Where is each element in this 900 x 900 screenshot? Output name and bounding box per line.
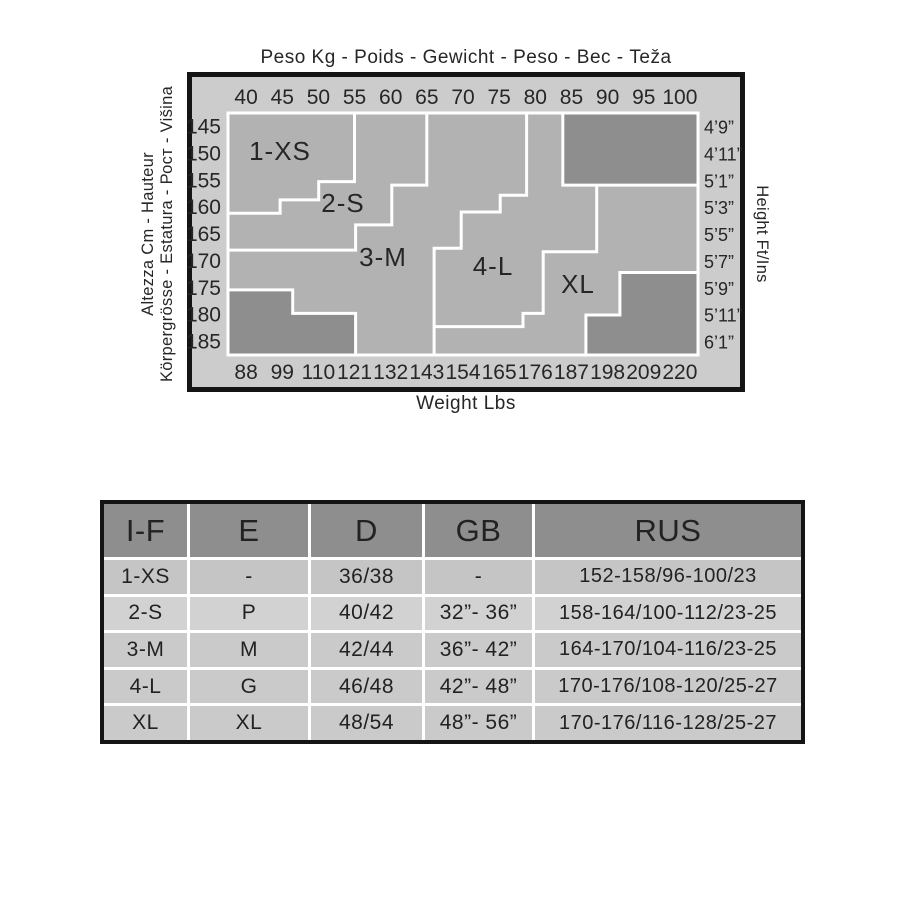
table-header-row: I-F E D GB RUS — [104, 504, 801, 557]
lbs-tick-label: 154 — [445, 361, 480, 384]
size-conversion-table: I-F E D GB RUS 1-XS-36/38-152-158/96-100… — [100, 500, 805, 744]
ftins-tick-label: 4’9” — [704, 118, 734, 138]
table-cell: XL — [104, 706, 190, 740]
ftins-tick-label: 4’11” — [704, 144, 743, 164]
table-cell: 158-164/100-112/23-25 — [535, 597, 801, 631]
table-cell: 42”- 48” — [425, 670, 535, 704]
kg-tick-label: 50 — [307, 86, 330, 109]
kg-tick-label: 85 — [560, 86, 583, 109]
table-cell: 170-176/116-128/25-27 — [535, 706, 801, 740]
table-cell: 4-L — [104, 670, 190, 704]
kg-tick-label: 75 — [487, 86, 510, 109]
table-cell: XL — [190, 706, 311, 740]
table-row: 1-XS-36/38-152-158/96-100/23 — [104, 557, 801, 594]
ftins-tick-label: 5’11” — [704, 306, 743, 326]
lbs-tick-label: 187 — [554, 361, 589, 384]
table-row: XLXL48/5448”- 56”170-176/116-128/25-27 — [104, 703, 801, 740]
kg-tick-label: 80 — [524, 86, 547, 109]
lbs-tick-label: 165 — [482, 361, 517, 384]
table-cell: 46/48 — [311, 670, 425, 704]
ftins-tick-label: 5’1” — [704, 171, 734, 191]
table-cell: 3-M — [104, 633, 190, 667]
table-cell: 2-S — [104, 597, 190, 631]
table-cell: 36/38 — [311, 560, 425, 594]
ftins-tick-label: 5’3” — [704, 198, 734, 218]
lbs-tick-label: 143 — [409, 361, 444, 384]
cm-tick-label: 155 — [186, 169, 221, 192]
table-row: 2-SP40/4232”- 36”158-164/100-112/23-25 — [104, 594, 801, 631]
ftins-tick-label: 5’5” — [704, 225, 734, 245]
table-cell: 36”- 42” — [425, 633, 535, 667]
kg-tick-label: 65 — [415, 86, 438, 109]
right-axis-title: Height Ft/Ins — [753, 185, 771, 282]
table-cell: - — [190, 560, 311, 594]
size-zone-label: 2-S — [321, 188, 364, 218]
table-header-cell-rus: RUS — [535, 504, 801, 557]
table-row: 4-LG46/4842”- 48”170-176/108-120/25-27 — [104, 667, 801, 704]
size-chart-svg: Peso Kg - Poids - Gewicht - Peso - Вес -… — [0, 0, 900, 460]
lbs-tick-label: 132 — [373, 361, 408, 384]
size-zone-label: XL — [561, 269, 595, 299]
table-cell: 152-158/96-100/23 — [535, 560, 801, 594]
lbs-tick-label: 99 — [271, 361, 294, 384]
ftins-tick-label: 5’9” — [704, 279, 734, 299]
lbs-tick-label: 220 — [662, 361, 697, 384]
lbs-tick-label: 121 — [337, 361, 372, 384]
ftins-tick-label: 6’1” — [704, 333, 734, 353]
kg-tick-label: 90 — [596, 86, 619, 109]
table-cell: 164-170/104-116/23-25 — [535, 633, 801, 667]
table-row: 3-MM42/4436”- 42”164-170/104-116/23-25 — [104, 630, 801, 667]
lbs-axis: 8899110121132143154165176187198209220 — [234, 361, 697, 384]
cm-tick-label: 170 — [186, 250, 221, 273]
size-zone-label: 1-XS — [249, 136, 311, 166]
lbs-tick-label: 110 — [302, 361, 335, 384]
table-cell: 48/54 — [311, 706, 425, 740]
size-chart-figure: Peso Kg - Poids - Gewicht - Peso - Вес -… — [0, 0, 900, 460]
cm-axis: 145150155160165170175180185 — [186, 116, 221, 354]
table-header-cell-gb: GB — [425, 504, 535, 557]
size-zone-label: 3-M — [359, 242, 407, 272]
table-cell: 32”- 36” — [425, 597, 535, 631]
table-cell: M — [190, 633, 311, 667]
weight-lbs-axis-title: Weight Lbs — [416, 393, 516, 414]
chart-title: Peso Kg - Poids - Gewicht - Peso - Вес -… — [260, 47, 671, 68]
left-axis-title-line1: Altezza Cm - Hauteur — [139, 152, 157, 316]
cm-tick-label: 145 — [186, 116, 221, 139]
dark-zone-top-right — [563, 113, 698, 185]
kg-tick-label: 100 — [662, 86, 697, 109]
cm-tick-label: 165 — [186, 223, 221, 246]
kg-tick-label: 95 — [632, 86, 655, 109]
lbs-tick-label: 198 — [590, 361, 625, 384]
table-cell: - — [425, 560, 535, 594]
lbs-tick-label: 209 — [626, 361, 661, 384]
table-cell: 40/42 — [311, 597, 425, 631]
kg-tick-label: 60 — [379, 86, 402, 109]
kg-tick-label: 70 — [451, 86, 474, 109]
table-cell: 1-XS — [104, 560, 190, 594]
table-header-cell-e: E — [190, 504, 311, 557]
cm-tick-label: 180 — [186, 304, 221, 327]
left-axis-title-line2: Körpergrösse - Estatura - Рост - Višina — [158, 85, 176, 382]
table-cell: P — [190, 597, 311, 631]
table-cell: G — [190, 670, 311, 704]
kg-tick-label: 55 — [343, 86, 366, 109]
ftins-tick-label: 5’7” — [704, 252, 734, 272]
table-header-cell-if: I-F — [104, 504, 190, 557]
table-cell: 48”- 56” — [425, 706, 535, 740]
table-cell: 42/44 — [311, 633, 425, 667]
cm-tick-label: 150 — [186, 142, 221, 165]
kg-tick-label: 45 — [271, 86, 294, 109]
size-zone-label: 4-L — [473, 251, 514, 281]
cm-tick-label: 160 — [186, 196, 221, 219]
table-header-cell-d: D — [311, 504, 425, 557]
lbs-tick-label: 88 — [234, 361, 257, 384]
kg-tick-label: 40 — [234, 86, 257, 109]
cm-tick-label: 175 — [186, 277, 221, 300]
lbs-tick-label: 176 — [518, 361, 553, 384]
cm-tick-label: 185 — [186, 331, 221, 354]
table-cell: 170-176/108-120/25-27 — [535, 670, 801, 704]
